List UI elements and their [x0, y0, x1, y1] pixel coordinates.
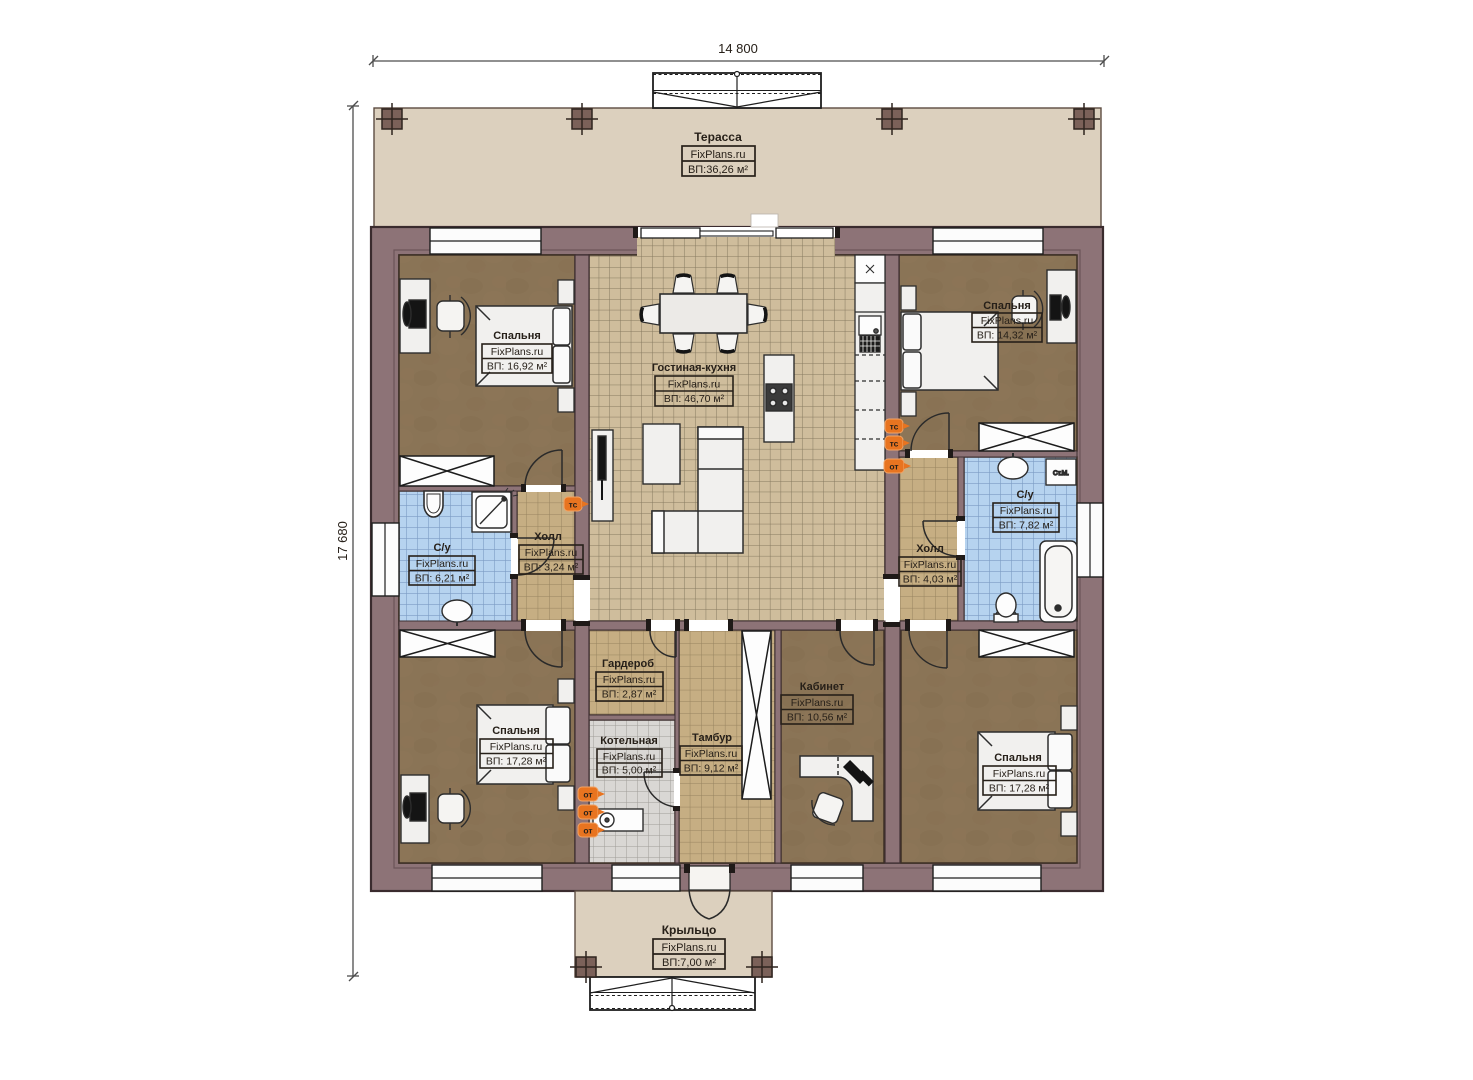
- svg-text:17 680: 17 680: [335, 521, 350, 561]
- svg-text:от: от: [889, 462, 898, 472]
- svg-text:FixPlans.ru: FixPlans.ru: [668, 379, 721, 391]
- svg-text:тс: тс: [890, 422, 899, 432]
- svg-text:ВП: 4,03 м²: ВП: 4,03 м²: [903, 574, 958, 586]
- svg-text:ВП: 2,87 м²: ВП: 2,87 м²: [602, 689, 657, 701]
- svg-text:Кабинет: Кабинет: [800, 681, 845, 693]
- svg-text:Тамбур: Тамбур: [692, 732, 732, 744]
- svg-text:ВП: 6,21 м²: ВП: 6,21 м²: [415, 573, 470, 585]
- svg-text:Холл: Холл: [534, 531, 562, 543]
- svg-text:Крыльцо: Крыльцо: [662, 923, 717, 937]
- svg-text:ВП: 10,56 м²: ВП: 10,56 м²: [787, 712, 848, 724]
- svg-text:FixPlans.ru: FixPlans.ru: [416, 558, 469, 570]
- svg-text:С/у: С/у: [1016, 489, 1034, 501]
- svg-text:тс: тс: [569, 500, 578, 510]
- svg-text:Терасса: Терасса: [694, 130, 742, 144]
- svg-text:С/у: С/у: [433, 542, 451, 554]
- svg-text:Спальня: Спальня: [983, 300, 1031, 312]
- svg-text:тс: тс: [890, 439, 899, 449]
- svg-text:Котельная: Котельная: [600, 735, 658, 747]
- svg-text:Спальня: Спальня: [994, 752, 1042, 764]
- svg-text:FixPlans.ru: FixPlans.ru: [993, 768, 1046, 780]
- svg-text:FixPlans.ru: FixPlans.ru: [791, 697, 844, 709]
- svg-text:FixPlans.ru: FixPlans.ru: [981, 315, 1034, 327]
- svg-text:FixPlans.ru: FixPlans.ru: [690, 149, 745, 161]
- svg-text:Ст.М.: Ст.М.: [1053, 470, 1069, 477]
- svg-text:FixPlans.ru: FixPlans.ru: [603, 751, 656, 763]
- svg-text:ВП: 5,00 м²: ВП: 5,00 м²: [602, 765, 657, 777]
- svg-text:FixPlans.ru: FixPlans.ru: [603, 674, 656, 686]
- svg-text:ВП: 17,28 м²: ВП: 17,28 м²: [989, 783, 1050, 795]
- svg-text:Гостиная-кухня: Гостиная-кухня: [652, 362, 736, 374]
- svg-text:Холл: Холл: [916, 543, 944, 555]
- svg-text:FixPlans.ru: FixPlans.ru: [491, 346, 544, 358]
- svg-text:FixPlans.ru: FixPlans.ru: [1000, 505, 1053, 517]
- svg-text:ВП: 7,82 м²: ВП: 7,82 м²: [999, 520, 1054, 532]
- svg-text:FixPlans.ru: FixPlans.ru: [904, 559, 957, 571]
- svg-text:от: от: [583, 808, 592, 818]
- svg-text:Спальня: Спальня: [492, 725, 540, 737]
- svg-text:ВП: 14,32 м²: ВП: 14,32 м²: [977, 330, 1038, 342]
- svg-text:Спальня: Спальня: [493, 330, 541, 342]
- svg-text:Гардероб: Гардероб: [602, 658, 654, 670]
- svg-text:FixPlans.ru: FixPlans.ru: [661, 942, 716, 954]
- svg-text:ВП: 17,28 м²: ВП: 17,28 м²: [486, 756, 547, 768]
- svg-text:ВП:7,00 м²: ВП:7,00 м²: [662, 957, 716, 969]
- svg-text:ВП: 46,70 м²: ВП: 46,70 м²: [664, 393, 725, 405]
- svg-text:ВП: 3,24 м²: ВП: 3,24 м²: [524, 562, 579, 574]
- svg-text:14 800: 14 800: [718, 41, 758, 56]
- svg-text:от: от: [583, 826, 592, 836]
- svg-text:ВП:36,26 м²: ВП:36,26 м²: [688, 164, 748, 176]
- svg-text:FixPlans.ru: FixPlans.ru: [490, 741, 543, 753]
- svg-text:ВП: 16,92 м²: ВП: 16,92 м²: [487, 361, 548, 373]
- svg-text:FixPlans.ru: FixPlans.ru: [525, 547, 578, 559]
- svg-text:от: от: [583, 790, 592, 800]
- svg-text:FixPlans.ru: FixPlans.ru: [685, 748, 738, 760]
- svg-text:ВП: 9,12 м²: ВП: 9,12 м²: [684, 763, 739, 775]
